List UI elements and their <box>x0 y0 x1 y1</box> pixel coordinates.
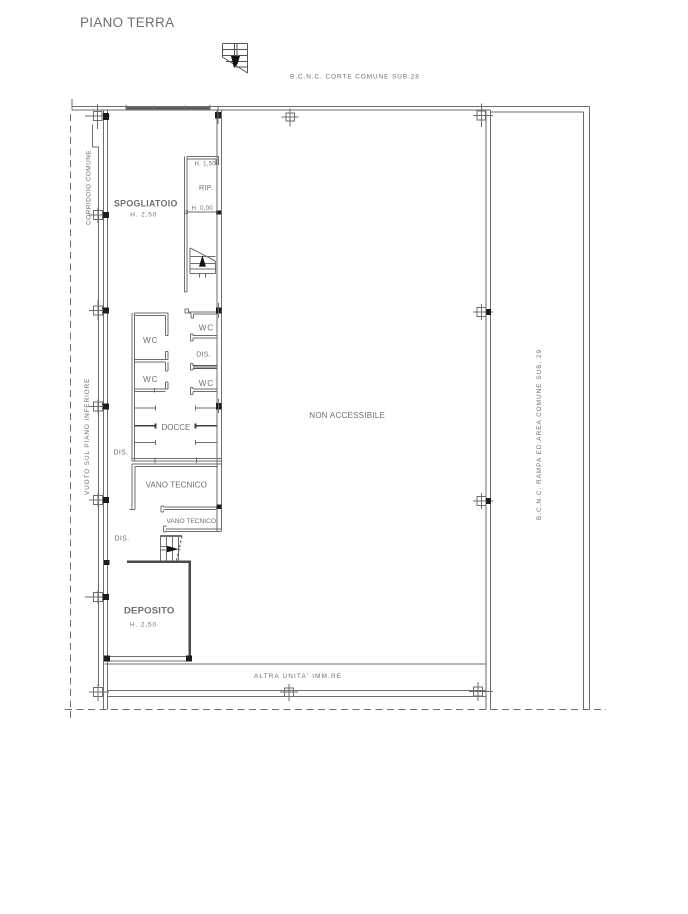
svg-text:B.C.N.C. CORTE COMUNE SUB.28: B.C.N.C. CORTE COMUNE SUB.28 <box>290 74 420 81</box>
svg-text:WC: WC <box>199 323 214 332</box>
svg-text:DIS.: DIS. <box>115 536 130 543</box>
svg-text:DIS.: DIS. <box>196 350 211 359</box>
svg-text:DOCCE: DOCCE <box>162 423 191 432</box>
svg-text:SPOGLIATOIO: SPOGLIATOIO <box>114 199 178 209</box>
svg-text:DEPOSITO: DEPOSITO <box>124 606 175 617</box>
svg-text:H. 0,00: H. 0,00 <box>192 206 214 212</box>
svg-text:VUOTO SUL PIANO INFERIORE: VUOTO SUL PIANO INFERIORE <box>84 378 91 495</box>
svg-text:DIS.: DIS. <box>114 450 129 457</box>
svg-text:H. 2,50: H. 2,50 <box>130 622 157 629</box>
svg-text:PIANO TERRA: PIANO TERRA <box>80 15 174 30</box>
svg-text:WC: WC <box>143 375 158 384</box>
svg-text:H. 2,50: H. 2,50 <box>130 212 157 219</box>
svg-text:ALTRA UNITA' IMM.RE: ALTRA UNITA' IMM.RE <box>254 673 342 680</box>
svg-text:RIP.: RIP. <box>199 183 213 192</box>
svg-text:CORRIDOIO COMUNE: CORRIDOIO COMUNE <box>86 150 93 225</box>
svg-text:B.C.N.C. RAMPA ED.AREA COMUNE: B.C.N.C. RAMPA ED.AREA COMUNE SUB. 29 <box>536 349 543 520</box>
svg-text:VANO TECNICO: VANO TECNICO <box>146 481 207 490</box>
svg-text:WC: WC <box>199 379 214 388</box>
svg-text:WC: WC <box>143 336 158 345</box>
svg-text:VANO TECNICO: VANO TECNICO <box>166 518 216 525</box>
svg-text:NON ACCESSIBILE: NON ACCESSIBILE <box>309 411 385 420</box>
svg-text:H. 1,50: H. 1,50 <box>195 162 217 168</box>
